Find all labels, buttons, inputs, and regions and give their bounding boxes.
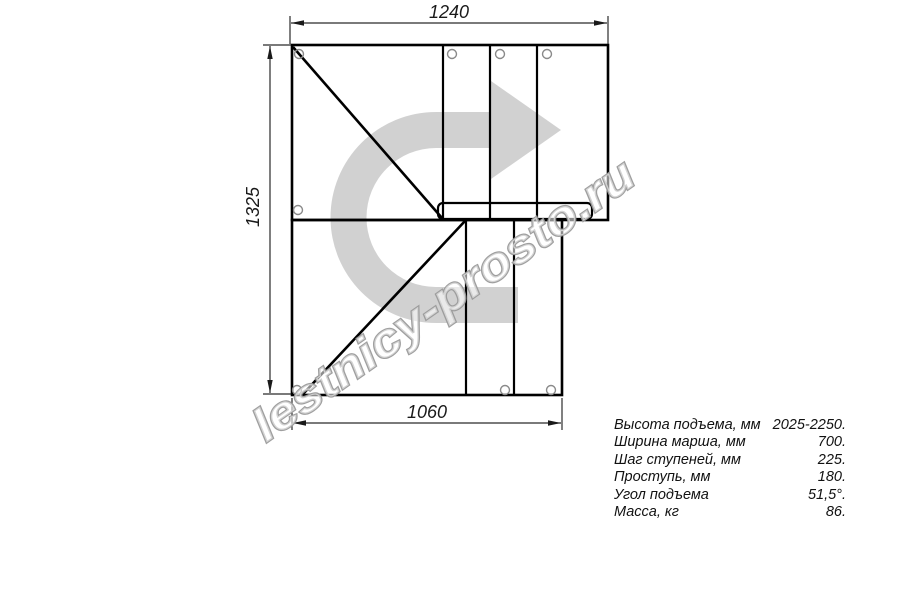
spec-value: 225. (818, 452, 846, 469)
spec-label: Масса, кг (614, 504, 679, 521)
arrowhead-right (594, 20, 607, 25)
spec-value: 51,5°. (808, 487, 846, 504)
arrowhead-left (291, 20, 304, 25)
hole-marker (496, 50, 505, 59)
spec-row-height: Высота подъема, мм 2025-2250. (614, 417, 846, 434)
spec-row-width: Ширина марша, мм 700. (614, 434, 846, 451)
dimension-label-bottom: 1060 (407, 402, 447, 422)
spec-label: Шаг ступеней, мм (614, 452, 741, 469)
spec-value: 86. (826, 504, 846, 521)
hole-marker (448, 50, 457, 59)
spec-value: 700. (818, 434, 846, 451)
hole-marker (547, 386, 556, 395)
spec-row-tread: Проступь, мм 180. (614, 469, 846, 486)
arrowhead-right (548, 420, 561, 425)
spec-row-angle: Угол подъема 51,5°. (614, 487, 846, 504)
spec-value: 2025-2250. (773, 417, 846, 434)
spec-label: Высота подъема, мм (614, 417, 761, 434)
spec-label: Ширина марша, мм (614, 434, 746, 451)
spec-table: Высота подъема, мм 2025-2250. Ширина мар… (614, 417, 846, 521)
dimension-label-left: 1325 (243, 186, 263, 227)
hole-marker (501, 386, 510, 395)
spec-row-step: Шаг ступеней, мм 225. (614, 452, 846, 469)
drawing-canvas: 1240 1325 1060 lestnicy-prosto.ru Высота… (0, 0, 900, 600)
spec-value: 180. (818, 469, 846, 486)
spec-label: Угол подъема (614, 487, 709, 504)
arrowhead-up (267, 46, 272, 59)
spec-label: Проступь, мм (614, 469, 710, 486)
spec-row-mass: Масса, кг 86. (614, 504, 846, 521)
dimension-label-top: 1240 (429, 2, 469, 22)
hole-marker (543, 50, 552, 59)
hole-marker (294, 206, 303, 215)
